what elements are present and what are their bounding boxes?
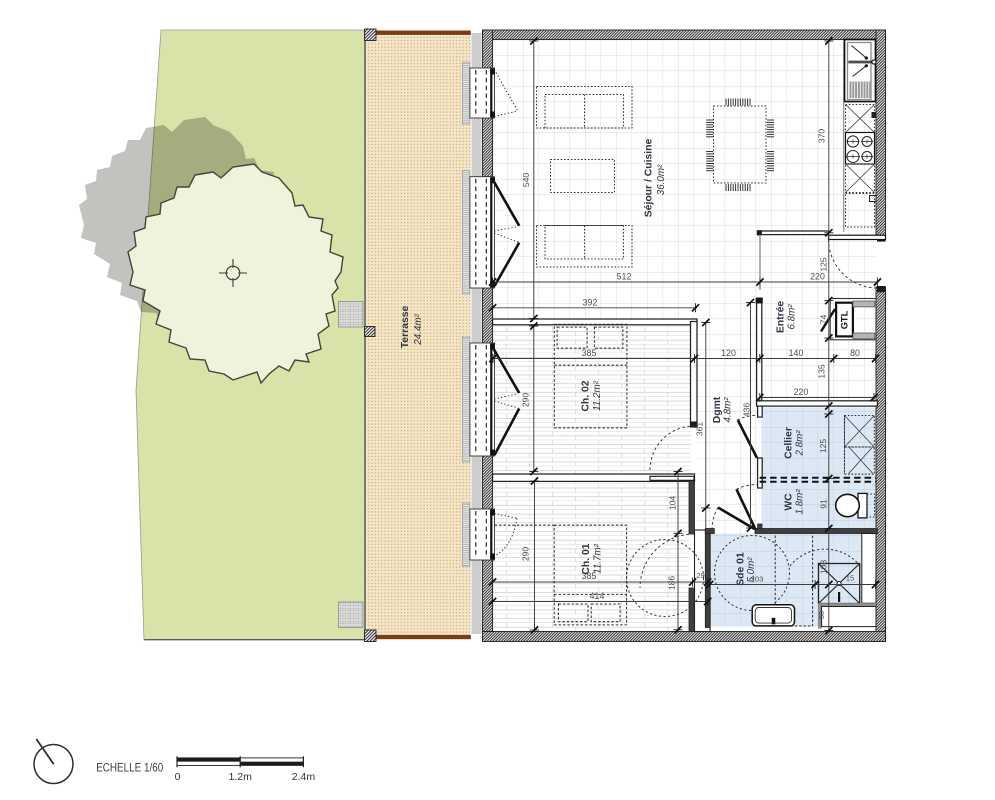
svg-text:15: 15	[846, 574, 854, 583]
svg-text:1.2m: 1.2m	[229, 771, 253, 783]
svg-text:125: 125	[818, 439, 828, 454]
svg-text:24.4m²: 24.4m²	[413, 314, 424, 346]
svg-text:1.8m²: 1.8m²	[795, 489, 806, 515]
svg-text:74: 74	[819, 315, 829, 325]
svg-text:5.0m²: 5.0m²	[746, 557, 757, 583]
svg-text:414: 414	[590, 591, 605, 601]
svg-text:220: 220	[794, 387, 809, 397]
svg-text:370: 370	[817, 129, 827, 144]
svg-text:2.4m: 2.4m	[292, 771, 316, 783]
svg-text:108: 108	[819, 560, 829, 575]
svg-text:Terrasse: Terrasse	[400, 306, 411, 349]
svg-text:361: 361	[694, 422, 704, 437]
svg-text:Sde 01: Sde 01	[736, 552, 747, 586]
svg-text:Ch. 01: Ch. 01	[581, 543, 592, 574]
svg-text:80: 80	[850, 348, 860, 358]
svg-text:Séjour / Cuisine: Séjour / Cuisine	[644, 139, 655, 218]
svg-text:436: 436	[741, 403, 751, 418]
svg-text:29: 29	[696, 571, 704, 580]
svg-text:290: 290	[521, 547, 531, 562]
svg-text:GTL: GTL	[839, 310, 849, 329]
svg-text:186: 186	[667, 576, 677, 591]
svg-text:Dgmt: Dgmt	[712, 396, 723, 423]
svg-text:104: 104	[668, 496, 678, 511]
svg-text:512: 512	[617, 272, 632, 282]
svg-text:290: 290	[520, 393, 530, 408]
svg-text:140: 140	[789, 348, 804, 358]
svg-text:6.8m²: 6.8m²	[787, 304, 798, 330]
svg-text:Cellier: Cellier	[784, 427, 795, 459]
svg-text:36.0m²: 36.0m²	[656, 164, 667, 195]
svg-text:ECHELLE 1/60: ECHELLE 1/60	[96, 761, 163, 775]
svg-text:0: 0	[175, 771, 181, 783]
svg-text:Entrée: Entrée	[776, 301, 787, 334]
svg-text:540: 540	[521, 173, 531, 188]
svg-text:4.8m²: 4.8m²	[723, 397, 734, 423]
svg-text:220: 220	[810, 272, 825, 282]
svg-text:50: 50	[817, 611, 826, 619]
svg-text:11.7m²: 11.7m²	[593, 543, 604, 574]
svg-text:WC: WC	[784, 493, 795, 511]
svg-text:125: 125	[819, 257, 829, 272]
svg-text:2.8m²: 2.8m²	[795, 430, 806, 457]
svg-text:385: 385	[582, 348, 597, 358]
svg-text:392: 392	[583, 297, 598, 307]
svg-text:91: 91	[819, 499, 829, 509]
svg-text:Ch. 02: Ch. 02	[581, 380, 592, 411]
svg-text:135: 135	[817, 364, 827, 379]
svg-text:120: 120	[721, 348, 736, 358]
svg-text:11.2m²: 11.2m²	[592, 380, 603, 411]
